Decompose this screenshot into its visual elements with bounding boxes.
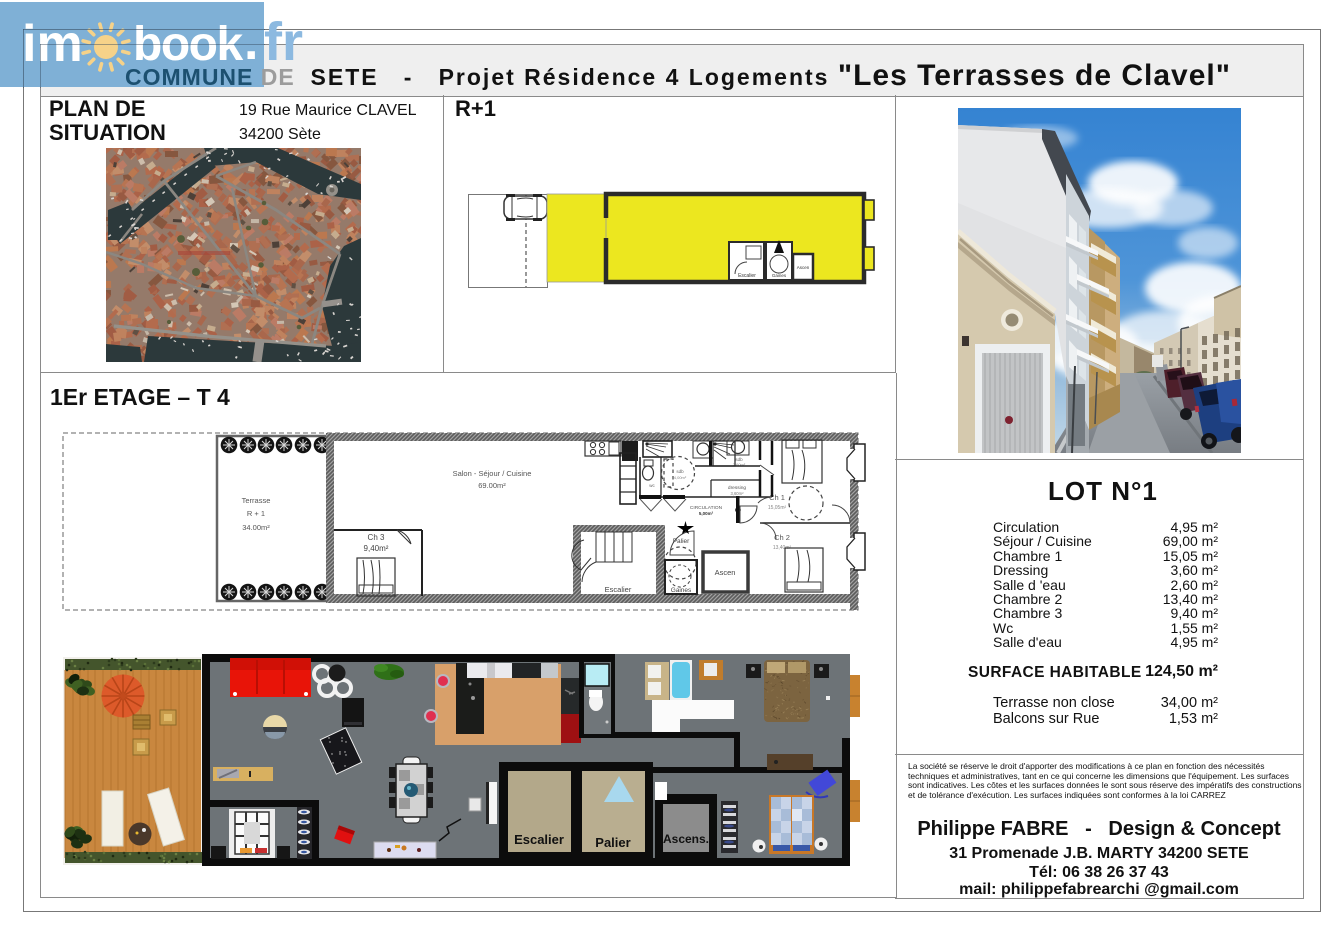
svg-text:Escalier: Escalier: [738, 273, 756, 279]
svg-text:5,00m²: 5,00m²: [699, 511, 714, 516]
svg-text:Ascen: Ascen: [715, 568, 736, 577]
svg-text:Gaines: Gaines: [671, 587, 692, 594]
svg-text:Salon - Séjour / Cuisine: Salon - Séjour / Cuisine: [453, 469, 532, 478]
svg-text:15,05m²: 15,05m²: [768, 505, 787, 511]
svg-text:R + 1: R + 1: [247, 509, 265, 518]
svg-text:Terrasse: Terrasse: [242, 496, 271, 505]
svg-text:Palier: Palier: [595, 835, 630, 850]
svg-text:Ch 2: Ch 2: [774, 533, 790, 542]
svg-text:sdb: sdb: [676, 469, 684, 474]
svg-text:69.00m²: 69.00m²: [478, 481, 506, 490]
svg-text:wc: wc: [649, 483, 655, 488]
svg-text:3,60m²: 3,60m²: [730, 491, 744, 496]
svg-text:4,00m²: 4,00m²: [674, 475, 687, 480]
svg-text:Ch 3: Ch 3: [368, 533, 385, 542]
svg-text:Palier: Palier: [673, 538, 690, 545]
svg-text:Escalier: Escalier: [514, 832, 564, 847]
svg-text:Ascens.: Ascens.: [663, 832, 709, 846]
svg-text:Ascen: Ascen: [797, 265, 810, 270]
svg-text:Gaines: Gaines: [772, 273, 787, 278]
svg-text:34.00m²: 34.00m²: [242, 523, 270, 532]
svg-text:9,40m²: 9,40m²: [364, 544, 389, 553]
svg-text:Escalier: Escalier: [605, 585, 632, 594]
